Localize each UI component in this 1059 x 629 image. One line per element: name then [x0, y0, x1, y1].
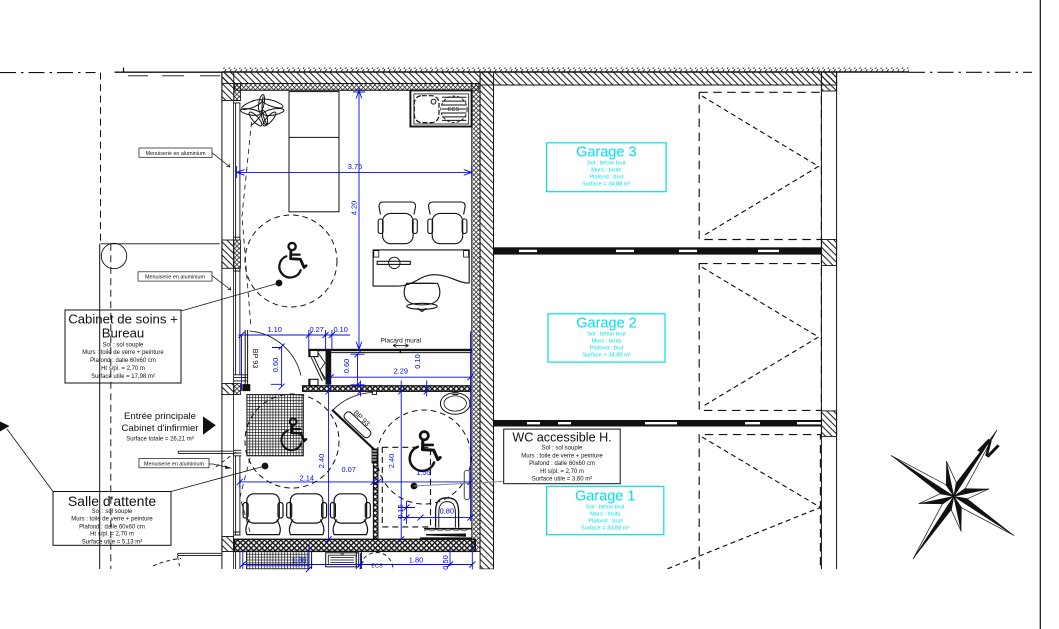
- svg-text:Surface utile = 3,60 m²: Surface utile = 3,60 m²: [532, 477, 593, 483]
- svg-text:2.29: 2.29: [394, 366, 408, 375]
- svg-text:Ht s/pl. = 2,70 m: Ht s/pl. = 2,70 m: [90, 532, 134, 538]
- svg-text:3.76: 3.76: [348, 162, 362, 171]
- svg-text:Menuiserie en aluminium: Menuiserie en aluminium: [146, 151, 206, 157]
- svg-text:Sol : sol souple: Sol : sol souple: [542, 446, 583, 452]
- svg-text:0.10: 0.10: [413, 354, 422, 368]
- svg-text:Entrée principale: Entrée principale: [124, 411, 196, 422]
- svg-text:BP 93: BP 93: [251, 349, 260, 368]
- svg-text:Sol : béton brut: Sol : béton brut: [587, 331, 626, 337]
- svg-text:Plafond : brut: Plafond : brut: [589, 174, 623, 180]
- svg-text:Murs : toile de verre + peintu: Murs : toile de verre + peinture: [82, 350, 164, 356]
- svg-text:Sol : sol souple: Sol : sol souple: [92, 509, 133, 515]
- svg-text:Murs : bruts: Murs : bruts: [591, 338, 621, 344]
- svg-text:0.80: 0.80: [440, 507, 454, 516]
- svg-text:ECS: ECS: [448, 107, 459, 113]
- svg-text:1.10: 1.10: [268, 325, 282, 334]
- svg-text:0.10: 0.10: [334, 325, 348, 334]
- svg-text:Salle d'attente: Salle d'attente: [68, 493, 157, 509]
- svg-text:0.16: 0.16: [396, 504, 405, 518]
- svg-text:1.55: 1.55: [416, 468, 430, 477]
- svg-text:WC accessible H.: WC accessible H.: [512, 431, 611, 445]
- svg-text:Surface = 34,88 m²: Surface = 34,88 m²: [581, 526, 630, 532]
- svg-text:Ht s/pl. = 2,70 m: Ht s/pl. = 2,70 m: [540, 469, 584, 475]
- svg-text:Bureau: Bureau: [102, 326, 145, 341]
- svg-text:Surface utile = 5,13 m²: Surface utile = 5,13 m²: [82, 539, 143, 545]
- svg-text:Murs : toile de verre + peintu: Murs : toile de verre + peinture: [521, 453, 603, 459]
- svg-text:2.40: 2.40: [387, 454, 396, 468]
- svg-text:Surface = 34,88 m²: Surface = 34,88 m²: [582, 182, 631, 188]
- svg-text:Ht s/pl. = 2,70 m: Ht s/pl. = 2,70 m: [101, 366, 145, 372]
- svg-text:0.60: 0.60: [342, 359, 351, 373]
- svg-text:0.50: 0.50: [441, 555, 450, 569]
- svg-text:Plafond : dalle 60x60 cm: Plafond : dalle 60x60 cm: [79, 524, 145, 530]
- svg-text:Placard mural: Placard mural: [380, 338, 421, 345]
- svg-text:Surface = 34,88 m²: Surface = 34,88 m²: [582, 353, 631, 359]
- svg-text:Surface utile = 17,98 m²: Surface utile = 17,98 m²: [91, 374, 155, 380]
- svg-text:Garage 1: Garage 1: [575, 489, 635, 505]
- svg-text:Sol : sol souple: Sol : sol souple: [103, 342, 144, 348]
- svg-text:2.40: 2.40: [317, 454, 326, 468]
- svg-text:Murs : bruts: Murs : bruts: [591, 167, 621, 173]
- svg-text:Murs : toile de verre + peintu: Murs : toile de verre + peinture: [71, 517, 153, 523]
- svg-text:Cabinet de soins +: Cabinet de soins +: [68, 312, 178, 327]
- svg-text:Menuiserie en aluminium: Menuiserie en aluminium: [145, 275, 205, 281]
- svg-text:Garage 3: Garage 3: [576, 145, 636, 161]
- svg-text:Plafond : dalle 60x60 cm: Plafond : dalle 60x60 cm: [529, 461, 595, 467]
- svg-text:Garage 2: Garage 2: [576, 316, 636, 332]
- svg-text:Cabinet d'infirmier: Cabinet d'infirmier: [121, 423, 199, 434]
- svg-text:2.14: 2.14: [300, 474, 314, 483]
- svg-text:Menuiserie en aluminium: Menuiserie en aluminium: [144, 461, 204, 467]
- svg-text:Plafond : brut: Plafond : brut: [588, 518, 622, 524]
- svg-text:0.07: 0.07: [342, 465, 356, 474]
- svg-text:Murs : bruts: Murs : bruts: [590, 511, 620, 517]
- svg-text:0.27: 0.27: [310, 325, 324, 334]
- svg-text:Sol : béton brut: Sol : béton brut: [586, 504, 625, 510]
- svg-text:1.80: 1.80: [409, 556, 423, 565]
- svg-text:0.60: 0.60: [271, 358, 280, 372]
- svg-text:1.88: 1.88: [292, 556, 306, 565]
- svg-text:Plafond : brut: Plafond : brut: [590, 345, 624, 351]
- svg-text:Sol : béton brut: Sol : béton brut: [587, 160, 626, 166]
- svg-text:4.20: 4.20: [350, 201, 359, 215]
- svg-text:Surface totale = 26,21 m²: Surface totale = 26,21 m²: [126, 437, 194, 443]
